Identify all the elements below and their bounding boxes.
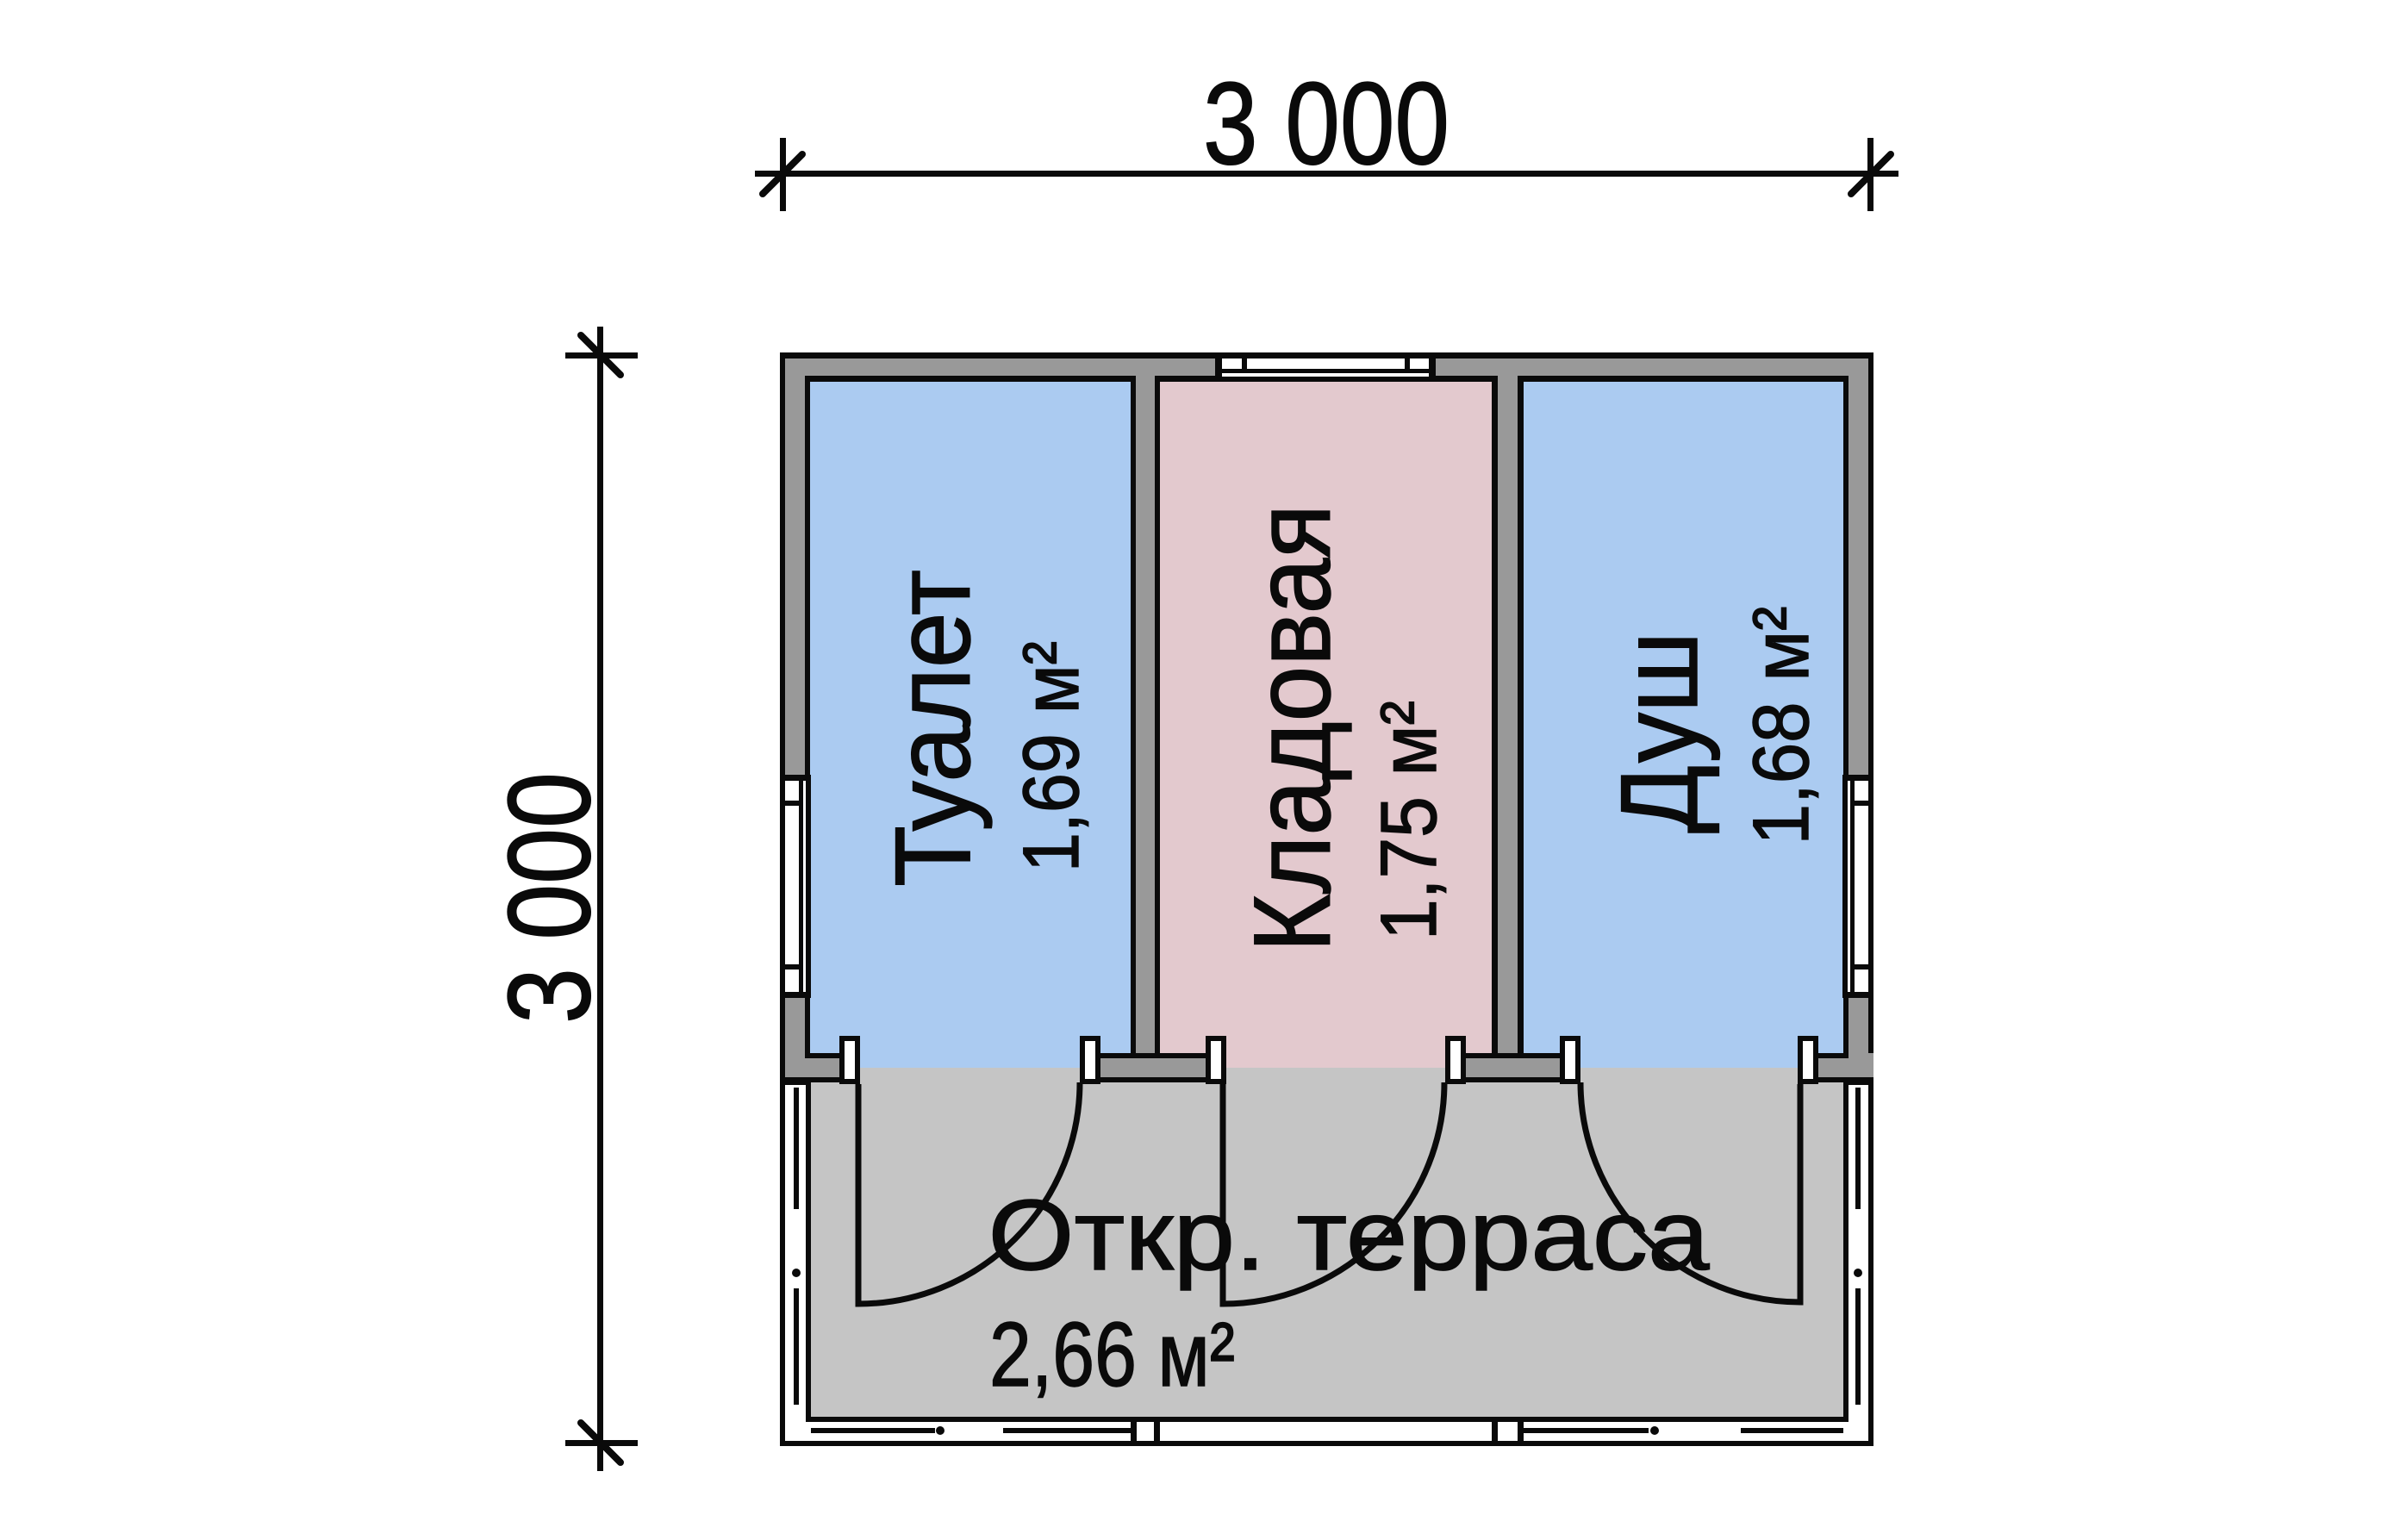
svg-text:Откр. терраса: Откр. терраса <box>988 1179 1711 1291</box>
svg-text:Душ: Душ <box>1598 632 1720 833</box>
svg-text:3 000: 3 000 <box>483 772 614 1024</box>
svg-text:Кладовая: Кладовая <box>1231 504 1353 952</box>
svg-text:3 000: 3 000 <box>1203 58 1449 189</box>
svg-text:1,75 м²: 1,75 м² <box>1365 701 1453 940</box>
svg-text:2,66 м²: 2,66 м² <box>989 1304 1235 1406</box>
svg-text:Туалет: Туалет <box>874 570 993 887</box>
svg-text:1,69 м²: 1,69 м² <box>1007 641 1095 872</box>
svg-text:1,68 м²: 1,68 м² <box>1737 607 1825 845</box>
